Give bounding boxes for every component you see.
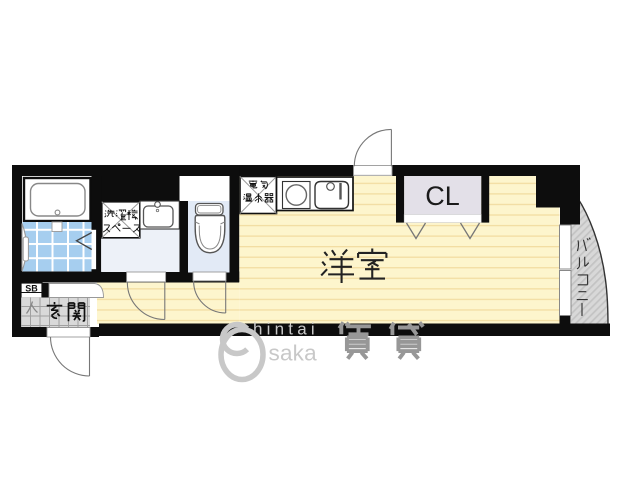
- svg-text:hintai: hintai: [253, 320, 319, 339]
- svg-text:CL: CL: [425, 181, 460, 211]
- svg-text:saka: saka: [269, 341, 318, 366]
- svg-text:SB: SB: [25, 284, 38, 294]
